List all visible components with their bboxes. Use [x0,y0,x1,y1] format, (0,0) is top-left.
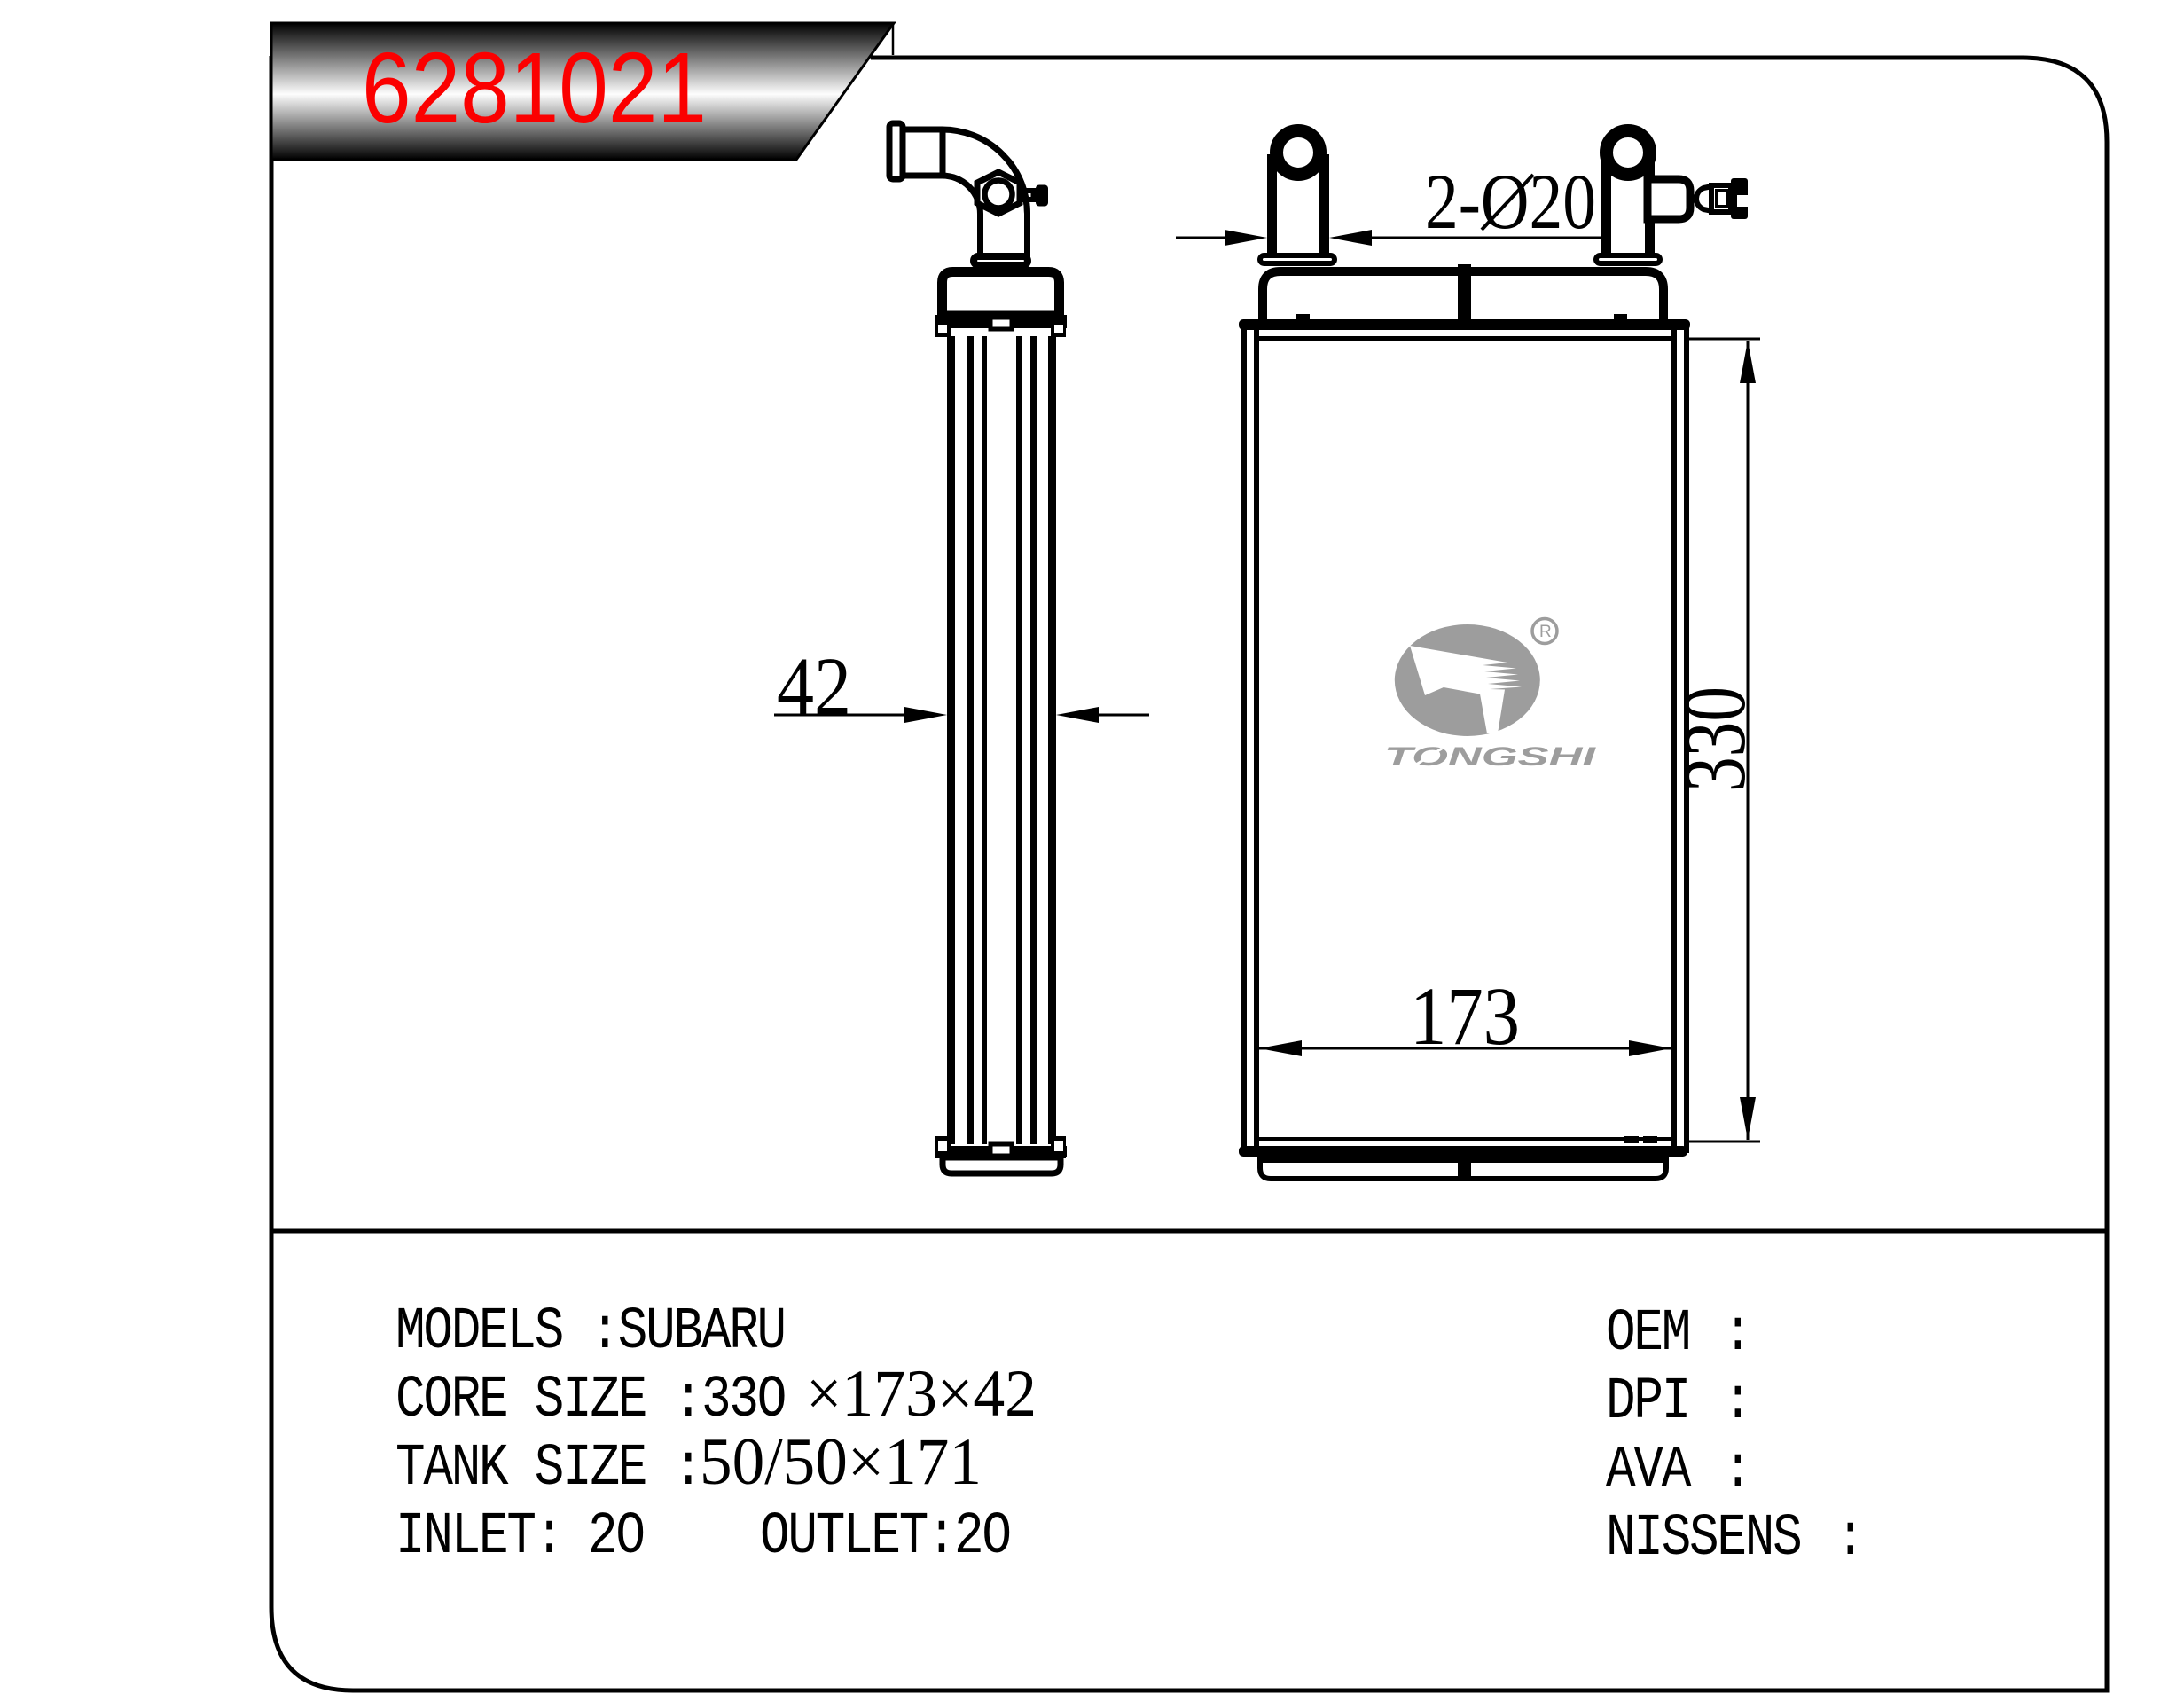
svg-text:173: 173 [1410,971,1520,1063]
svg-text:TANK SIZE :: TANK SIZE : [395,1435,701,1502]
svg-text::: : [1836,1505,1863,1573]
svg-text:2O: 2O [954,1503,1010,1571]
svg-text:TONGSHI: TONGSHI [1384,742,1596,772]
svg-text:33O: 33O [701,1367,785,1434]
svg-text:OUTLET:: OUTLET: [760,1503,954,1571]
svg-text:2-O20: 2-O20 [1425,159,1596,246]
svg-text:OEM: OEM [1606,1300,1689,1368]
svg-text:50/50×171: 50/50×171 [700,1425,982,1499]
svg-text::: : [1723,1437,1750,1504]
svg-text:330: 330 [1665,686,1764,792]
svg-text:AVA: AVA [1606,1437,1692,1504]
svg-text:42: 42 [777,641,851,733]
svg-text:DPI: DPI [1606,1369,1689,1436]
svg-text:R: R [1539,623,1552,641]
svg-text:INLET:: INLET: [395,1503,562,1571]
svg-text::: : [1723,1369,1750,1436]
svg-text:CORE SIZE :: CORE SIZE : [395,1367,701,1434]
svg-text::: : [1723,1300,1750,1368]
svg-text:MODELS :SUBARU: MODELS :SUBARU [395,1298,785,1366]
svg-text:×173×42: ×173×42 [806,1357,1037,1431]
svg-text:2O: 2O [588,1503,644,1571]
svg-text:NISSENS: NISSENS [1606,1505,1801,1573]
svg-text:6281021: 6281021 [362,32,707,144]
